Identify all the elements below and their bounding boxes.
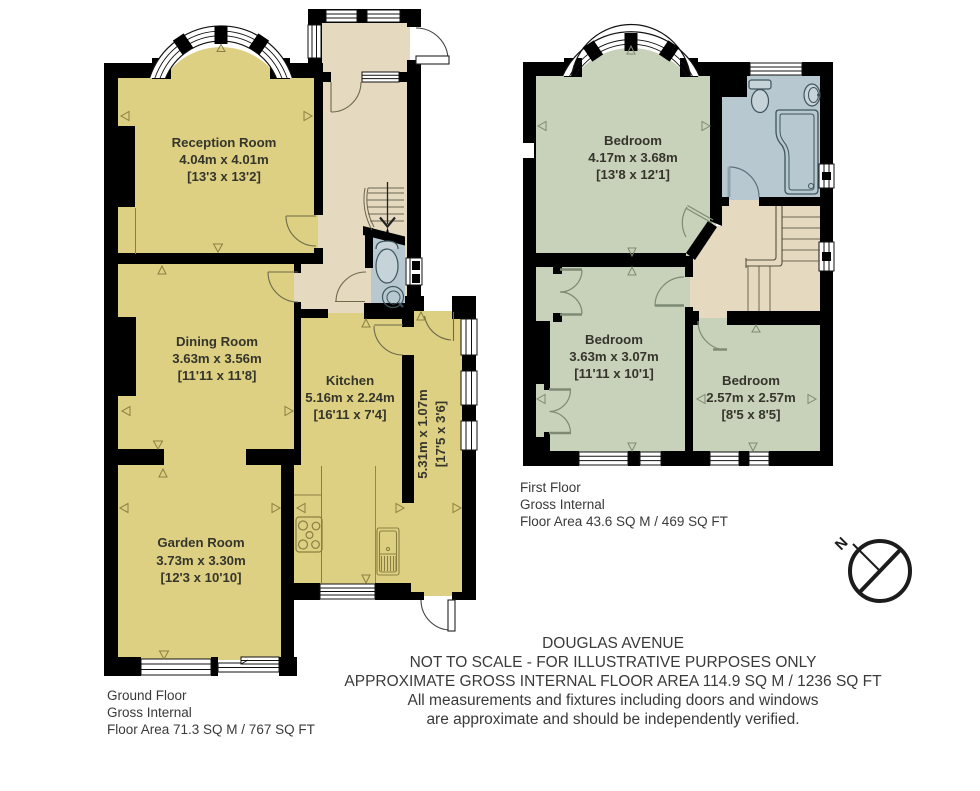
- svg-text:Ground Floor: Ground Floor: [107, 688, 187, 703]
- svg-text:Dining Room: Dining Room: [176, 334, 258, 349]
- svg-text:Kitchen: Kitchen: [326, 373, 374, 388]
- svg-text:are approximate and should be: are approximate and should be independen…: [426, 711, 799, 728]
- svg-text:Floor Area 43.6 SQ M / 469 SQ: Floor Area 43.6 SQ M / 469 SQ FT: [520, 514, 728, 529]
- svg-text:[13'8 x 12'1]: [13'8 x 12'1]: [596, 167, 670, 182]
- svg-text:[11'11 x 10'1]: [11'11 x 10'1]: [574, 366, 654, 381]
- svg-text:4.17m x 3.68m: 4.17m x 3.68m: [588, 150, 677, 165]
- svg-text:5.31m x 1.07m: 5.31m x 1.07m: [415, 389, 430, 478]
- svg-text:Gross Internal: Gross Internal: [520, 497, 605, 512]
- svg-text:3.63m x 3.56m: 3.63m x 3.56m: [172, 351, 261, 366]
- svg-text:[12'3 x 10'10]: [12'3 x 10'10]: [160, 570, 241, 585]
- svg-text:DOUGLAS AVENUE: DOUGLAS AVENUE: [542, 635, 684, 652]
- svg-text:3.63m x 3.07m: 3.63m x 3.07m: [569, 349, 658, 364]
- svg-text:[16'11 x 7'4]: [16'11 x 7'4]: [314, 407, 387, 422]
- svg-text:[17'5 x 3'6]: [17'5 x 3'6]: [433, 401, 448, 467]
- svg-text:Gross Internal: Gross Internal: [107, 705, 192, 720]
- svg-text:First Floor: First Floor: [520, 480, 581, 495]
- svg-text:3.73m x 3.30m: 3.73m x 3.30m: [156, 553, 245, 568]
- svg-text:Floor Area 71.3 SQ M / 767 SQ: Floor Area 71.3 SQ M / 767 SQ FT: [107, 722, 315, 737]
- svg-text:[8'5 x 8'5]: [8'5 x 8'5]: [721, 407, 780, 422]
- svg-text:5.16m x 2.24m: 5.16m x 2.24m: [305, 390, 394, 405]
- svg-text:[11'11 x 11'8]: [11'11 x 11'8]: [178, 368, 257, 383]
- svg-text:Bedroom: Bedroom: [585, 332, 643, 347]
- svg-text:Garden Room: Garden Room: [157, 535, 244, 550]
- svg-text:APPROXIMATE GROSS INTERNAL FLO: APPROXIMATE GROSS INTERNAL FLOOR AREA 11…: [344, 673, 882, 690]
- svg-text:NOT TO SCALE - FOR ILLUSTRATIV: NOT TO SCALE - FOR ILLUSTRATIVE PURPOSES…: [410, 654, 817, 671]
- svg-text:Bedroom: Bedroom: [604, 133, 662, 148]
- svg-text:[13'3 x 13'2]: [13'3 x 13'2]: [187, 169, 261, 184]
- svg-text:All measurements and fixtures: All measurements and fixtures including …: [408, 692, 819, 709]
- svg-text:4.04m x 4.01m: 4.04m x 4.01m: [179, 152, 268, 167]
- svg-text:Reception Room: Reception Room: [172, 135, 277, 150]
- svg-text:2.57m x 2.57m: 2.57m x 2.57m: [706, 390, 795, 405]
- svg-text:Bedroom: Bedroom: [722, 373, 780, 388]
